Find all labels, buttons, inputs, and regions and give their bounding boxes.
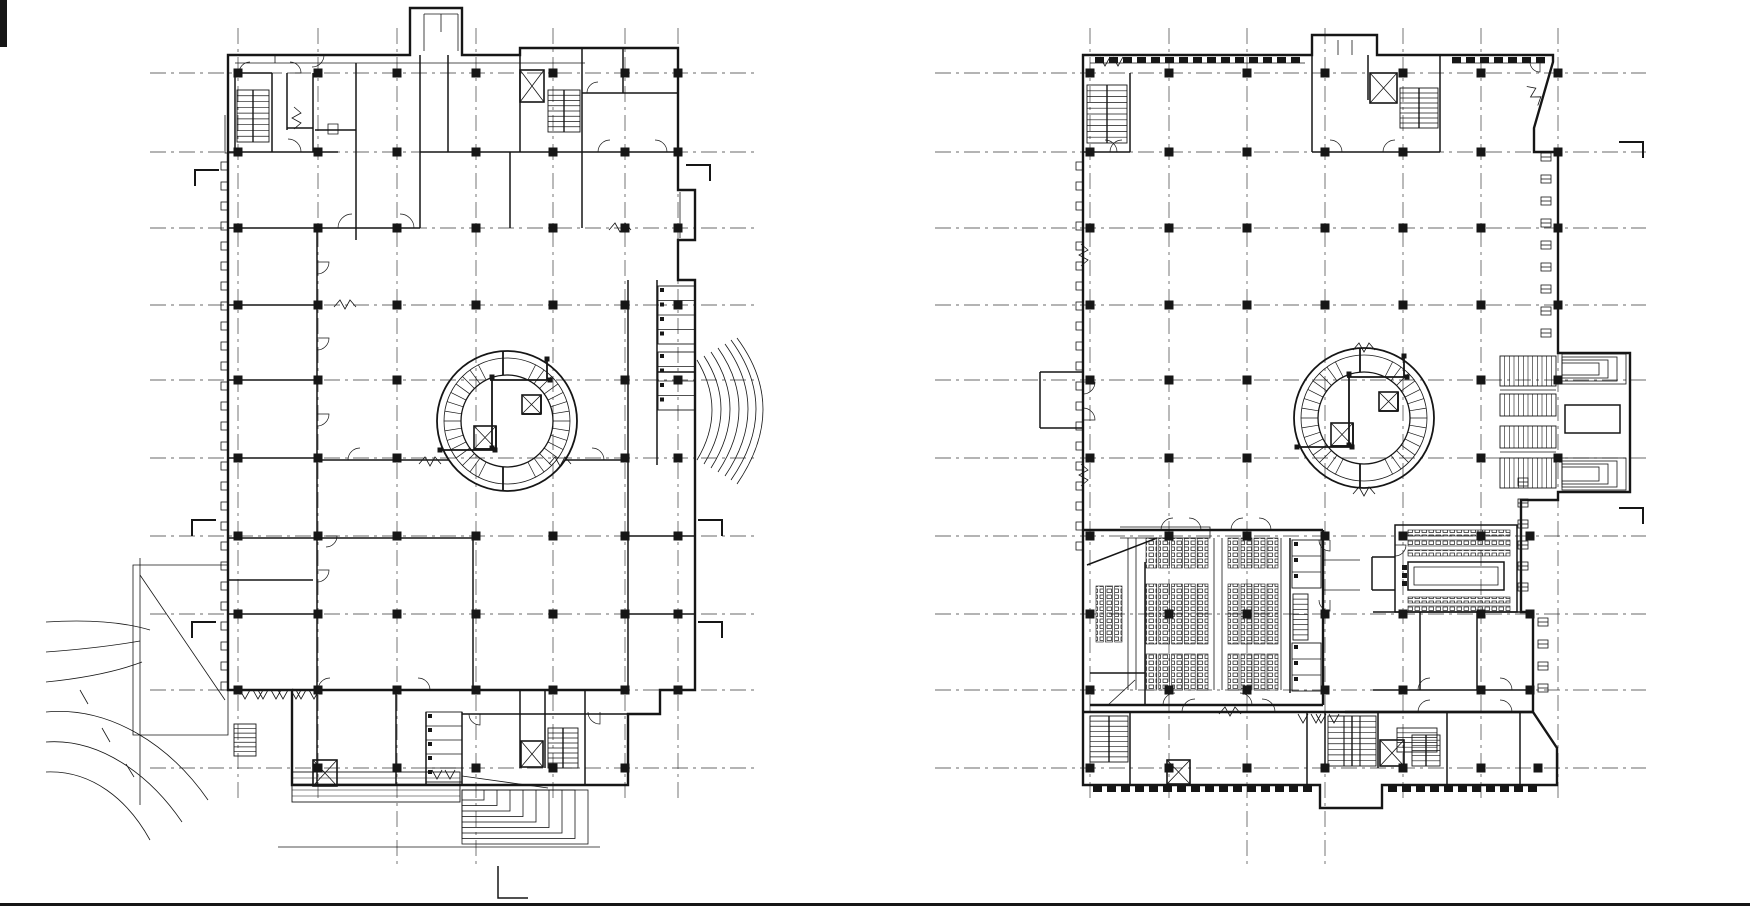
column xyxy=(1165,148,1174,157)
dentil xyxy=(1221,57,1230,63)
dentil xyxy=(1277,57,1286,63)
dentil xyxy=(1135,786,1144,792)
column xyxy=(1243,224,1252,233)
fixture xyxy=(660,303,664,307)
seat-strip xyxy=(1172,538,1183,568)
dentil xyxy=(1289,786,1298,792)
column xyxy=(393,686,402,695)
seat-row xyxy=(1408,530,1510,536)
column xyxy=(472,532,481,541)
dentil xyxy=(1458,786,1467,792)
dentil xyxy=(1388,786,1397,792)
column xyxy=(472,148,481,157)
column xyxy=(314,610,323,619)
dentil xyxy=(1514,786,1523,792)
column xyxy=(621,764,630,773)
dentil xyxy=(1291,57,1300,63)
fixture xyxy=(1294,677,1298,681)
column xyxy=(621,224,630,233)
seat-strip xyxy=(1254,538,1265,568)
fixture xyxy=(660,398,664,402)
dentil xyxy=(1261,786,1270,792)
column xyxy=(621,69,630,78)
column xyxy=(621,301,630,310)
column xyxy=(314,376,323,385)
column xyxy=(1243,532,1252,541)
fixture xyxy=(1294,542,1298,546)
column xyxy=(1554,376,1563,385)
column xyxy=(1321,610,1330,619)
dentil xyxy=(1402,565,1407,570)
column xyxy=(1399,224,1408,233)
dentil xyxy=(1137,57,1146,63)
column xyxy=(1534,764,1543,773)
column xyxy=(549,764,558,773)
fixture xyxy=(428,742,432,746)
column xyxy=(674,532,683,541)
column xyxy=(1477,764,1486,773)
seat-strip xyxy=(1228,538,1239,568)
dentil xyxy=(1191,786,1200,792)
dentil xyxy=(1193,57,1202,63)
seat-strip xyxy=(1184,538,1195,568)
dentil xyxy=(1452,57,1461,63)
fixture xyxy=(660,369,664,373)
column xyxy=(674,69,683,78)
fixture xyxy=(660,332,664,336)
column xyxy=(1243,610,1252,619)
column xyxy=(621,148,630,157)
dentil xyxy=(1275,786,1284,792)
dentil xyxy=(1402,786,1411,792)
column xyxy=(621,454,630,463)
column xyxy=(393,224,402,233)
column xyxy=(1086,376,1095,385)
seat-strip xyxy=(1172,654,1183,690)
column xyxy=(1477,610,1486,619)
column xyxy=(1086,224,1095,233)
wall-end-cap xyxy=(490,375,495,380)
column xyxy=(674,301,683,310)
column xyxy=(1086,148,1095,157)
dentil xyxy=(1151,57,1160,63)
column xyxy=(393,610,402,619)
column xyxy=(234,610,243,619)
column xyxy=(1477,532,1486,541)
dentil xyxy=(1466,57,1475,63)
column xyxy=(1165,376,1174,385)
dentil xyxy=(1472,786,1481,792)
column xyxy=(393,532,402,541)
column xyxy=(1165,454,1174,463)
column xyxy=(314,224,323,233)
seat-strip xyxy=(1197,584,1208,644)
column xyxy=(1165,301,1174,310)
dentil xyxy=(1149,786,1158,792)
column xyxy=(674,686,683,695)
column xyxy=(1526,610,1535,619)
dentil xyxy=(1416,786,1425,792)
seat-row xyxy=(1408,540,1510,546)
column xyxy=(234,69,243,78)
dentil xyxy=(1480,57,1489,63)
column xyxy=(1554,148,1563,157)
seat-row xyxy=(1408,606,1510,612)
dentil xyxy=(1165,57,1174,63)
wall-end-cap xyxy=(438,448,443,453)
column xyxy=(472,224,481,233)
column xyxy=(1243,686,1252,695)
column xyxy=(1399,610,1408,619)
seat-strip xyxy=(1228,654,1239,690)
column xyxy=(1321,224,1330,233)
column xyxy=(1477,301,1486,310)
fixture xyxy=(660,317,664,321)
column xyxy=(549,69,558,78)
dentil xyxy=(1219,786,1228,792)
column xyxy=(1477,454,1486,463)
seat-strip xyxy=(1184,654,1195,690)
seat-strip xyxy=(1267,654,1278,690)
column xyxy=(314,764,323,773)
dentil xyxy=(1402,581,1407,586)
column xyxy=(1243,301,1252,310)
dentil xyxy=(1107,786,1116,792)
seat-strip xyxy=(1115,586,1122,642)
dentil xyxy=(1522,57,1531,63)
dentil xyxy=(1263,57,1272,63)
column xyxy=(234,454,243,463)
column xyxy=(549,148,558,157)
wall-end-cap xyxy=(1295,445,1300,450)
column xyxy=(1165,610,1174,619)
seat-strip xyxy=(1159,538,1170,568)
wall-end-cap xyxy=(545,357,550,362)
column xyxy=(1477,686,1486,695)
fixture xyxy=(1294,574,1298,578)
column xyxy=(472,686,481,695)
dentil xyxy=(1177,786,1186,792)
dentil xyxy=(1444,786,1453,792)
wall-end-cap xyxy=(1405,375,1410,380)
column xyxy=(1086,532,1095,541)
dentil xyxy=(1093,786,1102,792)
dentil-row xyxy=(1095,57,1300,63)
seat-strip xyxy=(1254,584,1265,644)
column xyxy=(314,686,323,695)
column xyxy=(234,376,243,385)
column xyxy=(1554,69,1563,78)
column xyxy=(549,532,558,541)
column xyxy=(472,301,481,310)
column xyxy=(393,454,402,463)
dentil xyxy=(1179,57,1188,63)
column xyxy=(393,69,402,78)
column xyxy=(1321,301,1330,310)
column xyxy=(1086,686,1095,695)
fixture xyxy=(428,714,432,718)
column xyxy=(1243,376,1252,385)
seat-strip xyxy=(1228,584,1239,644)
column xyxy=(549,610,558,619)
seat-strip xyxy=(1197,654,1208,690)
column xyxy=(1526,686,1535,695)
column xyxy=(1243,454,1252,463)
fixture xyxy=(660,288,664,292)
column xyxy=(549,301,558,310)
dentil xyxy=(1500,786,1509,792)
fixture xyxy=(428,728,432,732)
column xyxy=(393,376,402,385)
column xyxy=(393,764,402,773)
column xyxy=(1086,610,1095,619)
column xyxy=(1554,454,1563,463)
column xyxy=(234,301,243,310)
seat-strip xyxy=(1254,654,1265,690)
wall-end-cap xyxy=(548,378,553,383)
column xyxy=(234,532,243,541)
column xyxy=(1321,764,1330,773)
seat-strip xyxy=(1096,586,1103,642)
dentil xyxy=(1249,57,1258,63)
column xyxy=(1399,764,1408,773)
fixture xyxy=(1294,645,1298,649)
column xyxy=(621,532,630,541)
column xyxy=(314,454,323,463)
seat-strip xyxy=(1241,538,1252,568)
dentil xyxy=(1121,786,1130,792)
seat-strip xyxy=(1146,538,1157,568)
column xyxy=(234,224,243,233)
column xyxy=(1477,148,1486,157)
column xyxy=(1243,148,1252,157)
column xyxy=(621,376,630,385)
column xyxy=(1399,532,1408,541)
column xyxy=(674,376,683,385)
column xyxy=(674,148,683,157)
column xyxy=(472,764,481,773)
fixture xyxy=(660,354,664,358)
seat-row xyxy=(1408,550,1510,556)
seating-bank xyxy=(1146,538,1208,568)
column xyxy=(1165,224,1174,233)
column xyxy=(472,69,481,78)
wall-end-cap xyxy=(1402,354,1407,359)
column xyxy=(1086,454,1095,463)
column xyxy=(621,610,630,619)
sheet-border-mark xyxy=(0,0,7,47)
dentil-row xyxy=(1388,786,1537,792)
seat-strip xyxy=(1267,584,1278,644)
seat-strip xyxy=(1267,538,1278,568)
seat-strip xyxy=(1146,654,1157,690)
seating-bank xyxy=(1146,654,1208,690)
fixture xyxy=(660,383,664,387)
column xyxy=(314,532,323,541)
column xyxy=(674,610,683,619)
dentil xyxy=(1486,786,1495,792)
fixture xyxy=(1294,661,1298,665)
column xyxy=(1165,764,1174,773)
column xyxy=(234,148,243,157)
dentil xyxy=(1494,57,1503,63)
column xyxy=(674,224,683,233)
dentil xyxy=(1207,57,1216,63)
column xyxy=(1399,148,1408,157)
column xyxy=(472,610,481,619)
column xyxy=(549,224,558,233)
dentil xyxy=(1430,786,1439,792)
dentil-row xyxy=(1402,565,1407,586)
column xyxy=(314,69,323,78)
seat-strip xyxy=(1241,654,1252,690)
dentil xyxy=(1205,786,1214,792)
seat-row xyxy=(1408,597,1510,603)
column xyxy=(1086,764,1095,773)
column xyxy=(1399,686,1408,695)
cad-canvas xyxy=(0,0,1750,911)
cad-drawing-sheet xyxy=(0,0,1750,911)
fixture xyxy=(428,770,432,774)
dentil xyxy=(1402,573,1407,578)
dentil xyxy=(1536,57,1545,63)
column xyxy=(393,148,402,157)
column xyxy=(1086,69,1095,78)
column xyxy=(1243,764,1252,773)
column xyxy=(1321,69,1330,78)
column xyxy=(1165,532,1174,541)
dentil xyxy=(1123,57,1132,63)
sheet-border-mark xyxy=(0,903,1750,906)
column xyxy=(1165,69,1174,78)
sheet-background xyxy=(0,0,1750,911)
dentil xyxy=(1235,57,1244,63)
dentil xyxy=(1163,786,1172,792)
seat-strip xyxy=(1105,586,1112,642)
column xyxy=(1321,148,1330,157)
column xyxy=(314,301,323,310)
column xyxy=(393,301,402,310)
fixture xyxy=(1294,558,1298,562)
fixture xyxy=(428,756,432,760)
seating-bank xyxy=(1096,586,1122,642)
column xyxy=(1086,301,1095,310)
column xyxy=(1554,224,1563,233)
column xyxy=(1526,532,1535,541)
dentil xyxy=(1528,786,1537,792)
dentil xyxy=(1233,786,1242,792)
column xyxy=(234,686,243,695)
seat-strip xyxy=(1159,654,1170,690)
column xyxy=(1477,224,1486,233)
column xyxy=(1165,686,1174,695)
column xyxy=(1477,69,1486,78)
dentil xyxy=(1247,786,1256,792)
seat-strip xyxy=(1197,538,1208,568)
column xyxy=(1554,301,1563,310)
column xyxy=(1477,376,1486,385)
seat-strip xyxy=(1146,584,1157,644)
seating-bank xyxy=(1146,584,1208,644)
column xyxy=(1321,532,1330,541)
column xyxy=(674,454,683,463)
wall-end-cap xyxy=(1347,372,1352,377)
seat-strip xyxy=(1184,584,1195,644)
column xyxy=(1399,301,1408,310)
column xyxy=(621,686,630,695)
column xyxy=(1399,69,1408,78)
column xyxy=(549,686,558,695)
column xyxy=(1321,686,1330,695)
dentil xyxy=(1303,786,1312,792)
dentil xyxy=(1508,57,1517,63)
column xyxy=(314,148,323,157)
column xyxy=(1243,69,1252,78)
